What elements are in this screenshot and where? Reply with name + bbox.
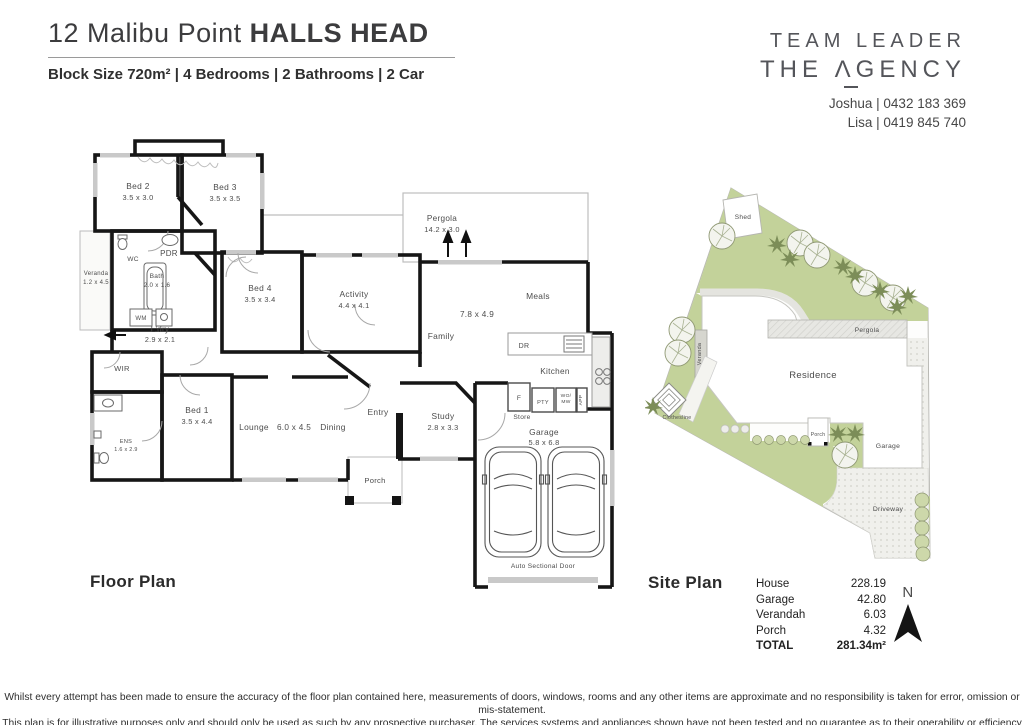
floor-plan-title: Floor Plan: [90, 572, 176, 592]
wm-label: WM: [135, 316, 146, 322]
porch-pillar: [392, 496, 401, 505]
kitchen-side-bench: [592, 337, 610, 407]
wir-label: WIR: [114, 364, 130, 373]
agency-brand: TEAM LEADER THE ΛGENCY Joshua | 0432 183…: [760, 30, 966, 133]
lounge-dining-dims: 6.0 x 4.5: [277, 423, 311, 432]
north-arrow-icon: [894, 604, 922, 642]
wall-oven-line2: MW: [561, 399, 570, 405]
brand-contacts: Joshua | 0432 183 369 Lisa | 0419 845 74…: [760, 95, 966, 133]
north-arrow: N: [888, 582, 928, 648]
ldry-dims: 2.9 x 2.1: [145, 335, 175, 344]
car-icon: [483, 447, 544, 557]
fridge-label: F: [517, 395, 521, 402]
pdr-label: PDR: [160, 249, 178, 258]
site-pergola-label: Pergola: [855, 327, 880, 334]
lounge-label: Lounge: [239, 422, 269, 432]
wall-oven-line1: WO/: [561, 393, 572, 399]
auto-door-label: Auto Sectional Door: [511, 563, 576, 570]
site-plan-title: Site Plan: [648, 573, 723, 593]
area-row: Porch 4.32: [756, 624, 886, 640]
north-label: N: [902, 584, 913, 601]
walls: [92, 141, 612, 587]
veranda-label: Veranda: [84, 271, 109, 277]
disclaimer: Whilst every attempt has been made to en…: [0, 691, 1024, 725]
veranda-dims: 1.2 x 4.5: [83, 280, 109, 286]
sliding-door-arrows: [444, 232, 470, 257]
area-value: 42.80: [828, 593, 886, 609]
study-dims: 2.8 x 3.3: [427, 423, 458, 432]
bath-dims: 2.0 x 1.6: [144, 282, 171, 289]
porch-label: Porch: [364, 476, 385, 485]
area-label: Verandah: [756, 608, 828, 624]
area-row: House 228.19: [756, 577, 886, 593]
porch-pillar: [345, 496, 354, 505]
bed4-dims: 3.5 x 3.4: [244, 295, 275, 304]
app-label: APP: [578, 395, 584, 406]
site-pergola: [768, 320, 907, 338]
contact-joshua: Joshua | 0432 183 369: [760, 95, 966, 114]
brand-line2: THE ΛGENCY: [760, 56, 966, 84]
dr-label: DR: [519, 343, 530, 350]
brand-a-underline: [844, 86, 858, 88]
garage-label: Garage: [529, 427, 559, 437]
bed2-dims: 3.5 x 3.0: [122, 193, 153, 202]
entry-label: Entry: [367, 407, 389, 417]
bed1-dims: 3.5 x 4.4: [181, 417, 212, 426]
veranda-exit-arrow: [106, 331, 126, 339]
shed-label: Shed: [735, 214, 751, 221]
area-total-row: TOTAL 281.34m²: [756, 639, 886, 655]
entry-study-wall-stub: [396, 413, 403, 459]
bed3-dims: 3.5 x 3.5: [209, 194, 240, 203]
title-divider: [48, 57, 455, 58]
area-table: House 228.19 Garage 42.80 Verandah 6.03 …: [756, 577, 886, 655]
residence-label: Residence: [789, 370, 837, 381]
area-row: Garage 42.80: [756, 593, 886, 609]
family-label: Family: [428, 331, 455, 341]
garage-dims: 5.8 x 6.8: [528, 438, 559, 447]
area-label: Garage: [756, 593, 828, 609]
page-title: 12 Malibu Point HALLS HEAD: [48, 18, 429, 49]
pergola-fp-label: Pergola: [427, 214, 457, 223]
bed1-label: Bed 1: [185, 405, 208, 415]
bath-label: Bath: [150, 273, 165, 280]
activity-label: Activity: [340, 289, 369, 299]
bed2-label: Bed 2: [126, 181, 149, 191]
bed4-label: Bed 4: [248, 283, 271, 293]
stepping-stones: [721, 425, 749, 433]
area-row: Verandah 6.03: [756, 608, 886, 624]
contact-lisa: Lisa | 0419 845 740: [760, 114, 966, 133]
area-total-value: 281.34m²: [828, 639, 886, 655]
site-veranda-label: Veranda: [697, 342, 703, 365]
property-summary: Block Size 720m² | 4 Bedrooms | 2 Bathro…: [48, 66, 424, 83]
ens-dims: 1.6 x 2.9: [114, 447, 137, 453]
suburb-text: HALLS HEAD: [250, 18, 429, 48]
bed3-label: Bed 3: [213, 182, 236, 192]
disclaimer-line1: Whilst every attempt has been made to en…: [0, 691, 1024, 717]
kitchen-label: Kitchen: [540, 367, 570, 376]
site-plan-drawing: Shed Pergola Veranda Residence Clothesli…: [645, 178, 945, 603]
site-porch-label: Porch: [811, 432, 826, 438]
address-text: 12 Malibu Point: [48, 18, 242, 48]
area-value: 228.19: [828, 577, 886, 593]
ldry-label: L'dry: [151, 325, 170, 334]
area-value: 6.03: [828, 608, 886, 624]
pantry-label: PTY: [537, 400, 549, 406]
floor-plan-drawing: Bed 2 3.5 x 3.0 Bed 3 3.5 x 3.5 Veranda …: [30, 125, 630, 595]
area-label: Porch: [756, 624, 828, 640]
pergola-fp-dims: 14.2 x 3.0: [424, 225, 459, 234]
wc-label: WC: [127, 256, 139, 263]
meals-label: Meals: [526, 291, 550, 301]
store-label: Store: [513, 414, 530, 421]
disclaimer-line2: This plan is for illustrative purposes o…: [0, 717, 1024, 725]
clothesline-label: Clothesline: [663, 415, 692, 421]
family-meals-dims: 7.8 x 4.9: [460, 310, 494, 319]
study-label: Study: [432, 411, 455, 421]
driveway-label: Driveway: [873, 506, 904, 513]
area-total-label: TOTAL: [756, 639, 828, 655]
activity-dims: 4.4 x 4.1: [338, 301, 369, 310]
brand-line1: TEAM LEADER: [760, 30, 966, 53]
page: 12 Malibu Point HALLS HEAD Block Size 72…: [0, 0, 1024, 725]
dining-label: Dining: [320, 422, 346, 432]
car-icon: [546, 447, 607, 557]
windows: [90, 153, 615, 583]
ens-label: ENS: [120, 439, 132, 445]
brand-line2-text: THE ΛGENCY: [760, 56, 966, 83]
area-label: House: [756, 577, 828, 593]
site-garage-label: Garage: [876, 443, 900, 450]
area-value: 4.32: [828, 624, 886, 640]
site-porch-post: [824, 442, 828, 446]
